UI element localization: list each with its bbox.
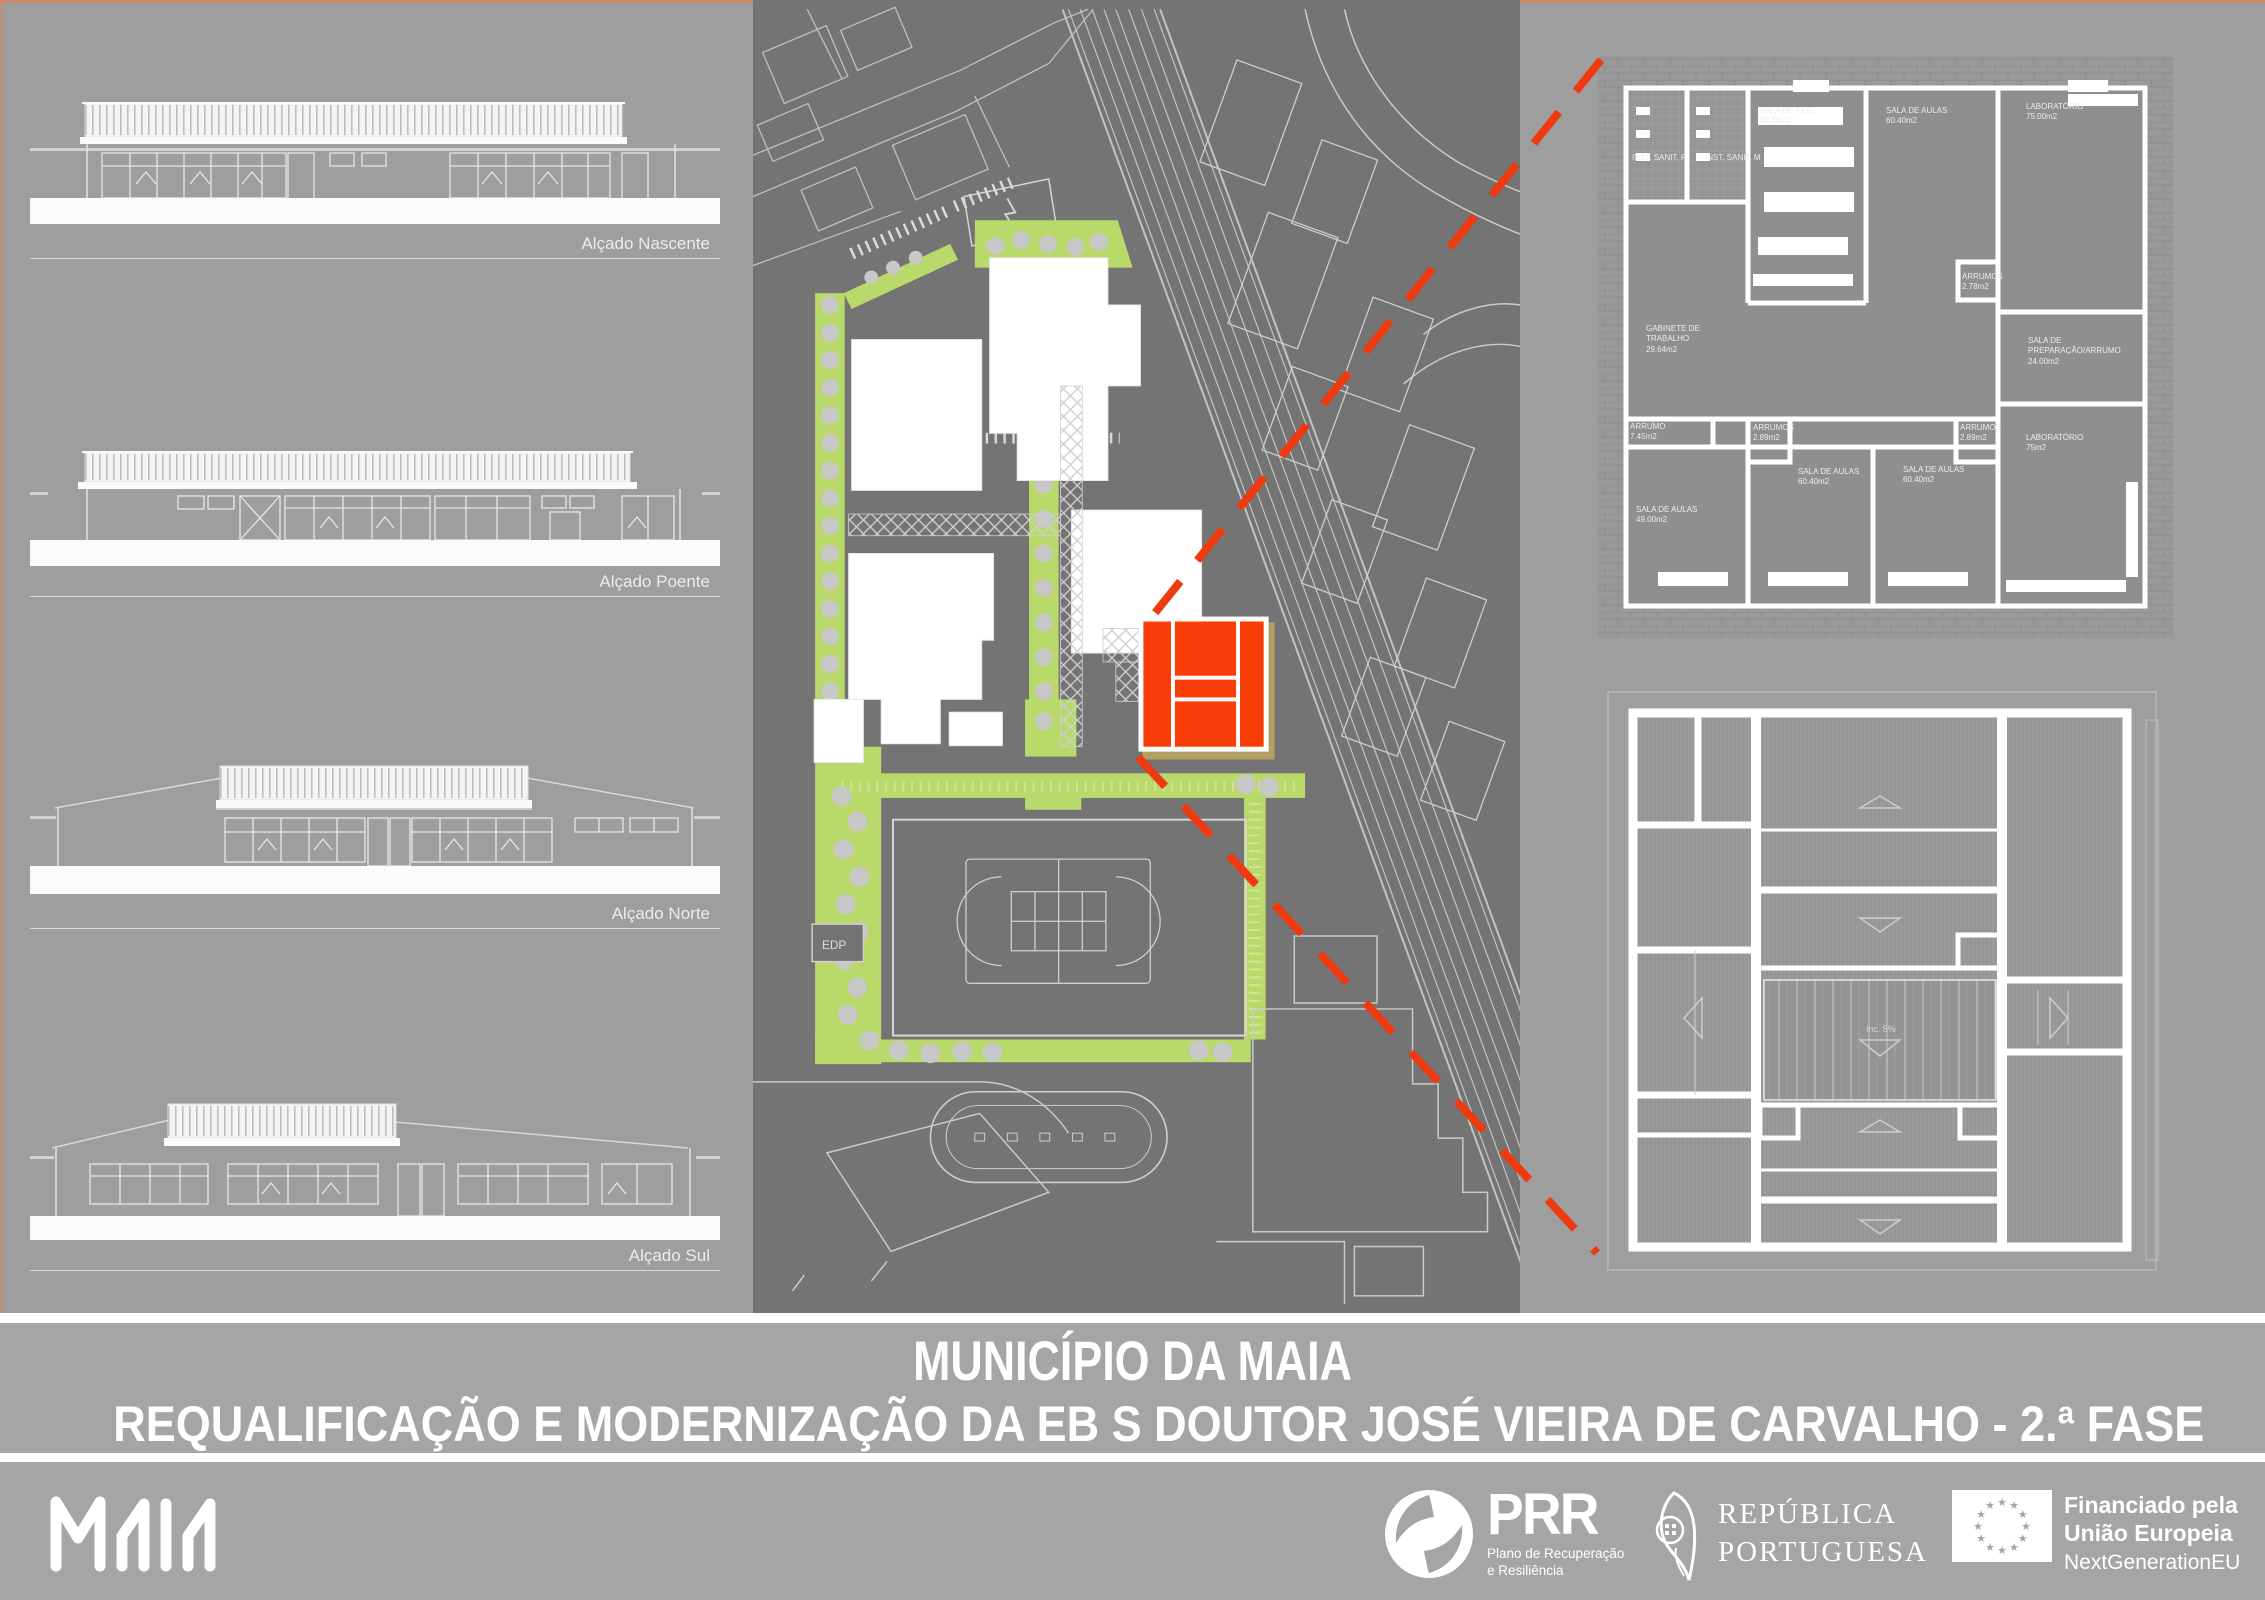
- title-band: MUNICÍPIO DA MAIA REQUALIFICAÇÃO E MODER…: [0, 1323, 2265, 1453]
- room-label: LABORATÓRIO75m2: [2026, 433, 2083, 454]
- room-label: SALA DE PREPARAÇÃO/ARRUMO24.00m2: [2028, 336, 2148, 367]
- eu-line2: União Europeia: [2064, 1520, 2240, 1548]
- elevation-label: Alçado Norte: [30, 904, 720, 929]
- svg-text:★: ★: [1997, 1497, 2007, 1509]
- republica-portuguesa-emblem: [1640, 1490, 1702, 1585]
- svg-text:★: ★: [2009, 1542, 2019, 1554]
- elevation-sul: Alçado Sul: [30, 1090, 720, 1271]
- elevation-drawing-sul: [30, 1090, 720, 1240]
- room-label: SALA DE AULAS60.40m2: [1903, 465, 1964, 486]
- room-label: INST. SANIT. F: [1632, 153, 1686, 163]
- svg-text:★: ★: [1973, 1521, 1983, 1533]
- room-label: ARRUMOS2.78m2: [1962, 272, 2003, 293]
- board-title: MUNICÍPIO DA MAIA: [227, 1328, 2039, 1393]
- room-label: SALA DE T.I.C.60.38m2: [1760, 106, 1814, 127]
- svg-text:★: ★: [1997, 1545, 2007, 1557]
- edp-label: EDP: [822, 938, 846, 952]
- site-plan-panel: EDP: [753, 0, 1520, 1313]
- presentation-board: Alçado Nascente: [0, 0, 2265, 1600]
- elevation-poente: Alçado Poente: [30, 448, 720, 597]
- prr-logo-icon: [1382, 1487, 1477, 1582]
- elevation-drawing-poente: [30, 448, 720, 566]
- svg-text:★: ★: [1976, 1533, 1986, 1545]
- prr-tagline-2: e Resiliência: [1487, 1563, 1624, 1580]
- roof-slope-label: inc. 5%: [1866, 1024, 1896, 1034]
- elevation-label: Alçado Poente: [30, 572, 720, 597]
- elevation-nascente: Alçado Nascente: [30, 98, 720, 259]
- republica-line1: REPÚBLICA: [1718, 1496, 1928, 1534]
- room-label: SALA DE AULAS60.40m2: [1886, 106, 1947, 127]
- room-label: ARRUMOS2.89m2: [1753, 423, 1794, 444]
- room-label: ARRUMOS2.89m2: [1960, 423, 2001, 444]
- roof-plan-panel: inc. 5%: [1598, 680, 2163, 1285]
- title-separator-top: [0, 1313, 2265, 1323]
- prr-name: PRR: [1487, 1487, 1617, 1542]
- floor-plan-panel: INST. SANIT. F INST. SANIT. M SALA DE T.…: [1598, 52, 2173, 642]
- svg-text:★: ★: [1985, 1500, 1995, 1512]
- eu-line3: NextGenerationEU: [2064, 1549, 2240, 1576]
- room-label: SALA DE AULAS49.00m2: [1636, 505, 1697, 526]
- eu-funding-logo: ★★★ ★★★ ★★★ ★★★ Financiado pela União Eu…: [1952, 1490, 2240, 1576]
- elevation-drawing-nascente: [30, 98, 720, 228]
- svg-text:★: ★: [2018, 1533, 2028, 1545]
- room-label: LABORATÓRIO75.00m2: [2026, 102, 2083, 123]
- eu-line1: Financiado pela: [2064, 1492, 2240, 1520]
- room-label: GABINETE DE TRABALHO29.64m2: [1646, 324, 1716, 355]
- prr-logo: PRR Plano de Recuperação e Resiliência: [1382, 1487, 1624, 1582]
- sheet-left-border: [0, 0, 3, 1313]
- svg-text:★: ★: [1985, 1542, 1995, 1554]
- elevation-norte: Alçado Norte: [30, 758, 720, 929]
- roof-plan-drawing: inc. 5%: [1598, 680, 2163, 1285]
- svg-text:★: ★: [2018, 1509, 2028, 1521]
- maia-logo: [48, 1492, 228, 1577]
- svg-text:★: ★: [2021, 1521, 2031, 1533]
- elevation-label: Alçado Nascente: [30, 234, 720, 259]
- room-label: INST. SANIT. M: [1705, 153, 1761, 163]
- board-subtitle: REQUALIFICAÇÃO E MODERNIZAÇÃO DA EB S DO…: [113, 1395, 2152, 1453]
- elevation-drawing-norte: [30, 758, 720, 898]
- highlighted-building: [1138, 617, 1274, 760]
- eu-flag-icon: ★★★ ★★★ ★★★ ★★★: [1952, 1490, 2052, 1562]
- republica-line2: PORTUGUESA: [1718, 1534, 1928, 1572]
- prr-tagline-1: Plano de Recuperação: [1487, 1546, 1624, 1563]
- republica-portuguesa-logo: REPÚBLICA PORTUGUESA: [1640, 1490, 1928, 1585]
- elevation-label: Alçado Sul: [30, 1246, 720, 1271]
- site-plan-drawing: EDP: [753, 0, 1520, 1313]
- footer: PRR Plano de Recuperação e Resiliência R…: [0, 1462, 2265, 1600]
- title-separator-bottom: [0, 1453, 2265, 1462]
- room-label: ARRUMO7.45m2: [1630, 422, 1666, 443]
- room-label: SALA DE AULAS60.40m2: [1798, 467, 1859, 488]
